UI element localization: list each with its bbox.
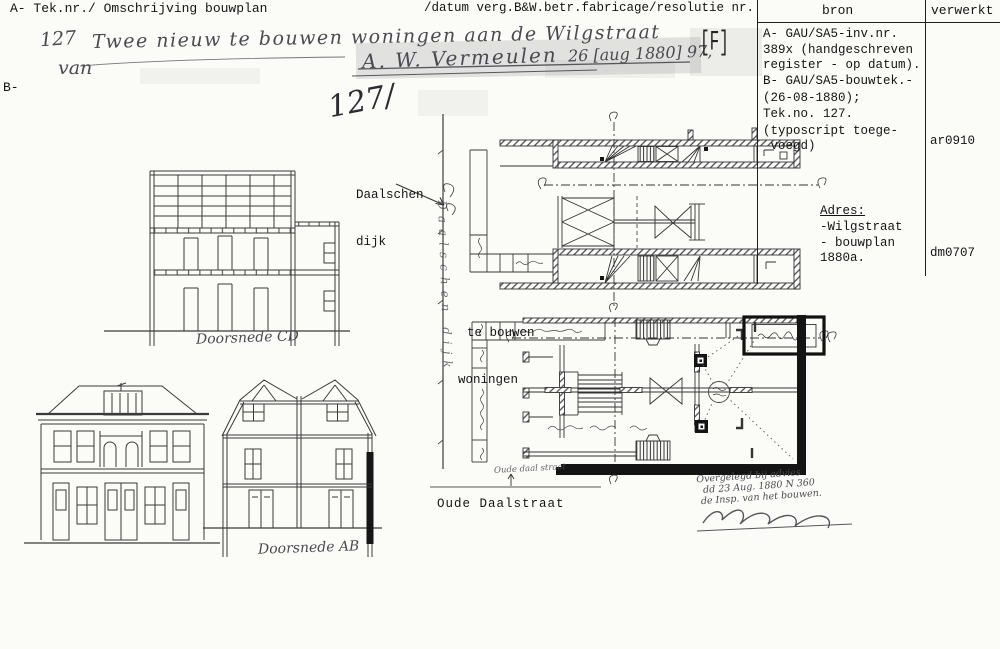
bron-cell: A- GAU/SA5-inv.nr. 389x (handgeschreven … [763, 27, 921, 122]
bron-line: (26-08-1880); [763, 91, 921, 107]
archive-card-scan: { "header": { "left": "A- Tek.nr./ Omsch… [0, 0, 1000, 649]
section-ab-drawing [203, 380, 382, 557]
bron-line: 389x (handgeschreven [763, 43, 921, 59]
bron-line: B- GAU/SA5-bouwtek.- [763, 74, 921, 90]
handwritten-van: van [58, 57, 92, 79]
facade-drawing [24, 383, 220, 543]
bron-line: A- GAU/SA5-inv.nr. [763, 27, 921, 43]
label-daalschen-line2: dijk [356, 235, 424, 251]
table-divider-left [757, 0, 758, 284]
header-left-label: A- Tek.nr./ Omschrijving bouwplan [10, 1, 267, 17]
label-te-bouwen-woningen: te bouwen woningen [458, 295, 535, 404]
adres-header: Adres: [820, 204, 865, 220]
bron-column-header: bron [822, 3, 853, 19]
verwerkt-column-header: verwerkt [931, 3, 993, 19]
bron-note-line2: voegd) [763, 139, 816, 155]
label-daalschen-line1: Daalschen [356, 188, 424, 204]
bron-line: register - op datum). [763, 58, 921, 74]
approval-signature [703, 510, 829, 528]
adres-line: -Wilgstraat [820, 220, 903, 236]
adres-line: - bouwplan [820, 236, 895, 252]
label-oude-daalstraat: Oude Daalstraat [437, 497, 565, 513]
label-tebouwen-line1: te bouwen [458, 326, 535, 342]
f-marker: [F] [700, 30, 729, 57]
header-right-label: /datum verg.B&W.betr.fabricage/resolutie… [424, 1, 754, 17]
section-cd-drawing [104, 171, 350, 346]
handwriting-flourishes [80, 57, 852, 531]
table-divider-mid [925, 0, 926, 276]
verwerkt-code-b: dm0707 [930, 246, 975, 262]
label-daalschen-dijk: Daalschen dijk [356, 157, 424, 266]
adres-line: 1880a. [820, 251, 865, 267]
verwerkt-code-a: ar0910 [930, 134, 975, 150]
handwritten-number: 127 [39, 27, 77, 51]
table-header-rule [757, 22, 1000, 23]
bron-line: Tek.no. 127. [763, 107, 921, 123]
label-tebouwen-line2: woningen [458, 373, 535, 389]
header-b-label: B- [3, 80, 19, 96]
bron-note-line1: (typoscript toege- [763, 124, 898, 140]
